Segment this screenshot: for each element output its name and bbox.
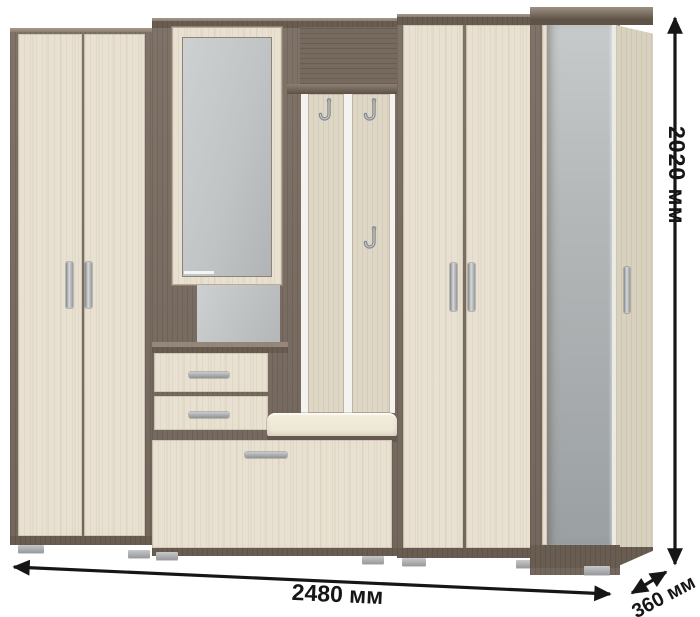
door-handle [245,452,287,458]
foot [584,566,610,575]
door-handle [85,262,92,308]
foot [128,550,150,558]
door-handle [66,262,73,308]
back-gap-strip [301,94,308,413]
foot [402,558,426,566]
coat-hook-icon [318,97,334,127]
mirror [182,37,272,277]
coat-rack-plank [308,94,344,413]
back-gap-strip [390,94,395,413]
foot [18,545,44,553]
right-wardrobe-plinth [397,548,542,558]
right-wardrobe-door-right [466,25,533,548]
drawer-handle [189,372,229,378]
back-gap-strip [344,94,352,413]
coat-hook-icon [363,97,379,127]
foot [156,552,178,560]
mirror-frame-highlight [612,25,616,545]
right-wardrobe-top-slab [397,17,542,25]
height-dimension-label: 2020 мм [663,126,690,225]
mirror-door-cabinet [530,7,655,583]
open-shelf-back-panel [197,285,280,342]
left-wardrobe [10,28,152,555]
width-dimension-label: 2480 мм [254,577,420,611]
bench-cushion [267,413,397,438]
foot [362,556,384,564]
coat-hook-icon [363,225,379,255]
mirror-cabinet-top-slab [530,7,653,25]
middle-plinth [152,548,420,556]
left-wardrobe-door-right [84,34,145,536]
product-dimension-diagram: 2480 мм 2020 мм 360 мм [0,0,700,617]
mirror-cabinet-plinth [530,545,620,568]
door-handle [624,267,630,313]
door-handle [450,263,457,311]
left-wardrobe-plinth [10,536,152,545]
middle-section [152,18,420,570]
cabinet-side-panel [616,25,653,567]
door-handle [468,263,475,311]
drawer-handle [189,412,229,418]
tall-mirror [547,25,612,545]
left-wardrobe-top-edge [10,28,152,32]
side-plinth [616,547,653,567]
right-wardrobe [397,14,542,570]
mirror-highlight [184,271,214,274]
